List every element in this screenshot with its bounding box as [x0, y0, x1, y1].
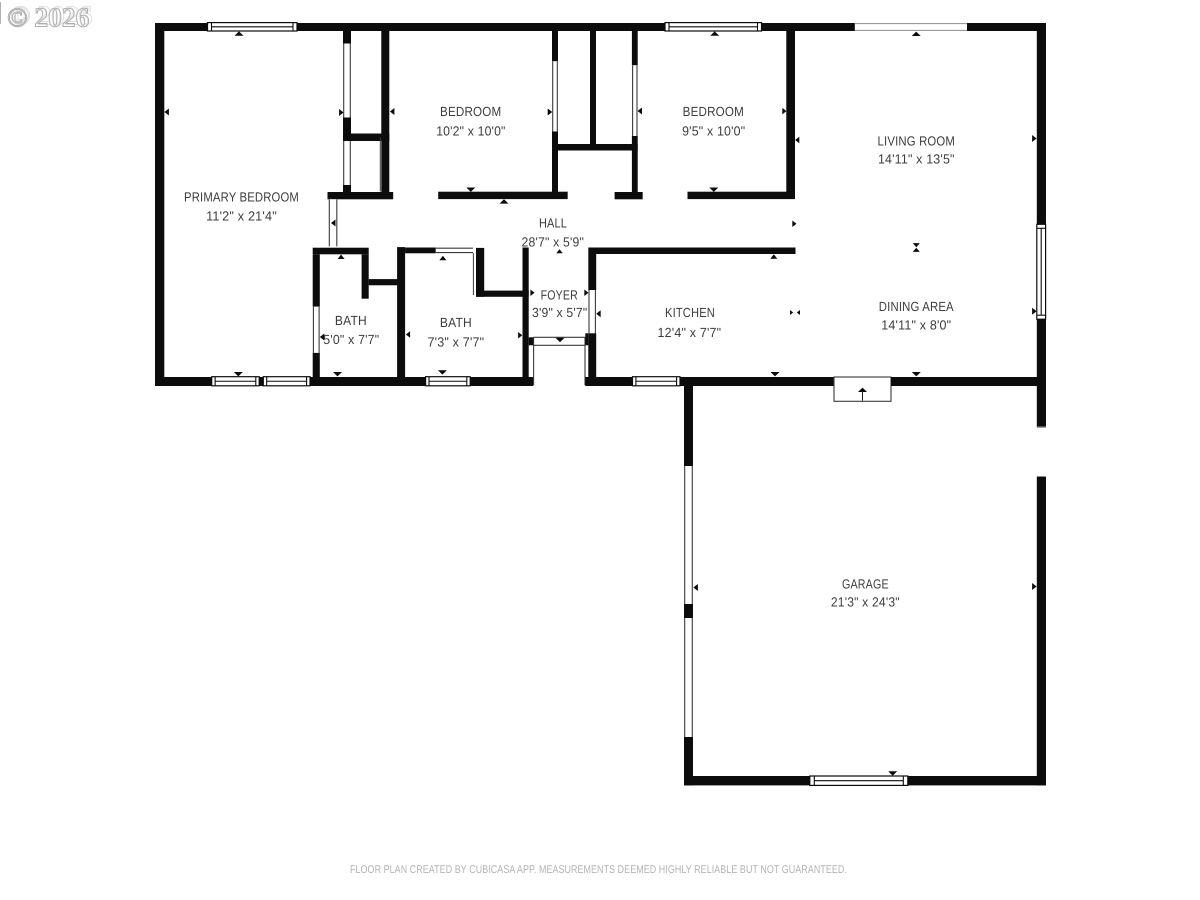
svg-text:28'7" x 5'9": 28'7" x 5'9"	[522, 234, 585, 249]
svg-text:LIVING ROOM: LIVING ROOM	[878, 133, 956, 148]
svg-text:DINING AREA: DINING AREA	[879, 299, 954, 314]
svg-text:FOYER: FOYER	[541, 288, 578, 303]
svg-text:BEDROOM: BEDROOM	[683, 104, 744, 119]
svg-text:GARAGE: GARAGE	[842, 576, 889, 591]
svg-text:BEDROOM: BEDROOM	[440, 104, 501, 119]
svg-text:PRIMARY BEDROOM: PRIMARY BEDROOM	[184, 190, 299, 205]
svg-text:11'2" x 21'4": 11'2" x 21'4"	[206, 209, 277, 224]
svg-text:7'3" x 7'7": 7'3" x 7'7"	[428, 334, 485, 349]
svg-text:BATH: BATH	[335, 313, 367, 328]
svg-text:3'9" x 5'7": 3'9" x 5'7"	[532, 305, 587, 320]
svg-text:KITCHEN: KITCHEN	[665, 305, 715, 320]
svg-text:BATH: BATH	[440, 315, 472, 330]
svg-text:14'11" x 13'5": 14'11" x 13'5"	[878, 152, 955, 167]
svg-text:10'2" x 10'0": 10'2" x 10'0"	[436, 124, 505, 139]
svg-text:FLOOR PLAN CREATED BY CUBICASA: FLOOR PLAN CREATED BY CUBICASA APP. MEAS…	[350, 864, 847, 876]
svg-text:14'11" x 8'0": 14'11" x 8'0"	[881, 318, 951, 333]
svg-text:HALL: HALL	[539, 216, 567, 231]
svg-text:12'4" x 7'7": 12'4" x 7'7"	[658, 325, 722, 340]
svg-text:21'3" x 24'3": 21'3" x 24'3"	[831, 594, 900, 609]
svg-text:9'5" x 10'0": 9'5" x 10'0"	[682, 124, 745, 139]
svg-text:© 2026: © 2026	[10, 0, 92, 31]
svg-text:5'0" x 7'7": 5'0" x 7'7"	[323, 332, 379, 347]
